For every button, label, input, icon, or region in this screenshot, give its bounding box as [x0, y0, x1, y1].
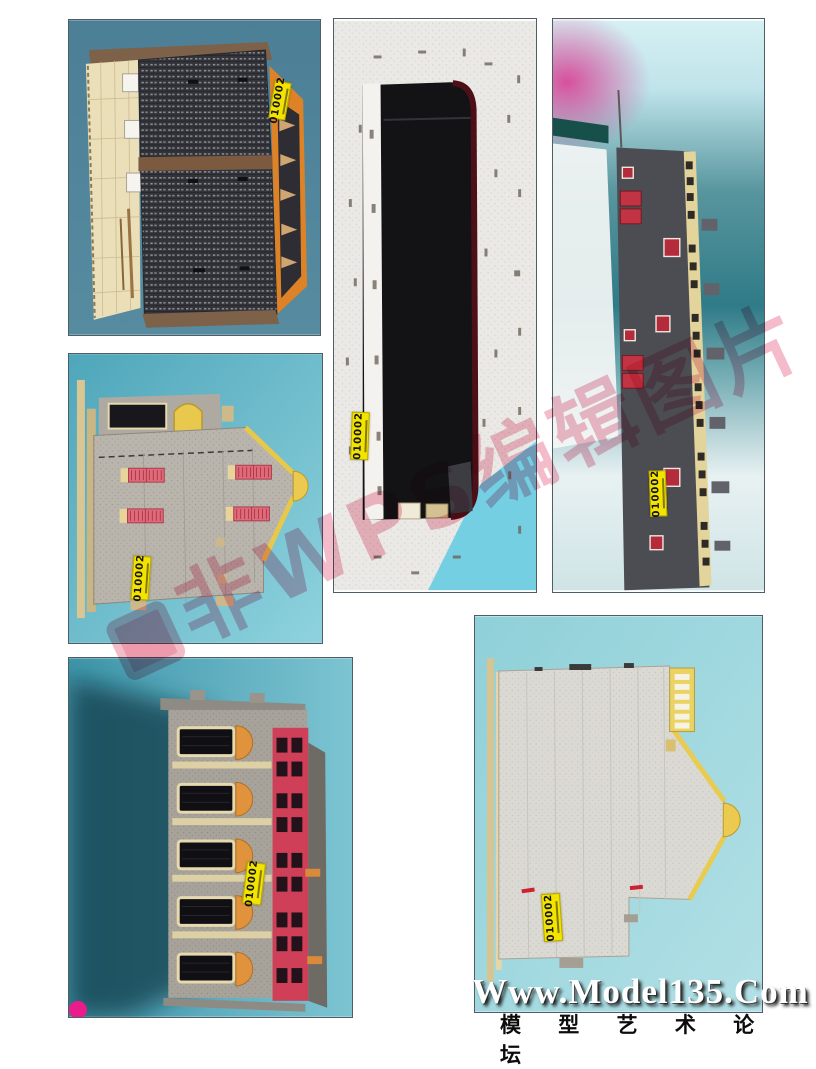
ladder-piece	[670, 668, 695, 732]
base-box-drawing	[334, 19, 536, 592]
trim-slat-1	[77, 380, 85, 618]
roof-ridge-middle	[138, 155, 273, 171]
sticker-code: 010002	[133, 554, 146, 602]
arched-window-wall-drawing	[69, 658, 352, 1017]
site-title: Www.Model135.Com	[472, 972, 809, 1012]
inventory-sticker: 010002	[649, 470, 668, 517]
box-tab-white	[398, 503, 420, 519]
inventory-sticker: 010002	[350, 412, 370, 461]
gable-wall-drawing	[69, 354, 322, 643]
sticker-fine-print	[364, 420, 367, 452]
edge-slat-1	[487, 658, 494, 982]
photo-side-wall-leaning: 010002	[552, 18, 765, 593]
photo-gable-wall-shutters: 010002	[68, 353, 323, 644]
photo-gable-panel-flat: 010002	[474, 615, 763, 1013]
inventory-sticker: 010002	[541, 893, 563, 942]
forum-title: 模 型 艺 术 论 坛	[500, 1009, 816, 1069]
sticker-fine-print	[662, 478, 665, 509]
gable-panel-drawing	[475, 616, 762, 1012]
roof-slope-upper	[138, 50, 271, 161]
roof-top-view-drawing	[69, 20, 320, 335]
photo-roof-top-view: 010002	[68, 19, 321, 336]
sticker-code: 010002	[651, 470, 663, 518]
sticker-code: 010002	[353, 412, 365, 460]
photo-arched-window-wall: 010002	[68, 657, 353, 1018]
small-yellow-tab	[666, 740, 676, 752]
roof-slope-lower	[140, 161, 277, 316]
box-corner-brace	[448, 461, 473, 513]
photo-base-box: 010002	[333, 18, 537, 593]
inventory-sticker: 010002	[130, 555, 151, 600]
box-tab-tan	[426, 504, 448, 518]
page: { "footer": { "site": "Www.Model135.Com"…	[0, 0, 816, 1056]
